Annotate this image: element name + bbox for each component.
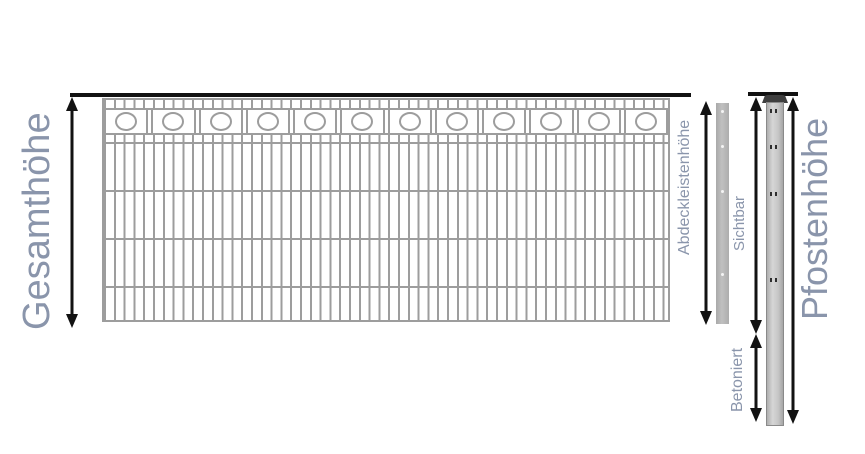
- fence-panel: [102, 98, 670, 322]
- top-reference-line: [70, 93, 691, 97]
- arrow-shaft: [755, 345, 758, 411]
- fence-top-square-band: [104, 100, 668, 110]
- arrowhead-down-icon: [66, 314, 78, 328]
- ornament-ring-icon: [351, 112, 373, 131]
- ornament-ring-icon: [446, 112, 468, 131]
- ornament-cell: [482, 110, 526, 133]
- ornament-cell: [151, 110, 195, 133]
- ornament-ring-icon: [304, 112, 326, 131]
- fence-mesh-grid: [104, 144, 668, 320]
- ornament-cell: [293, 110, 337, 133]
- arrow-shaft: [755, 108, 758, 323]
- ornament-cell: [624, 110, 668, 133]
- arrowhead-down-icon: [787, 410, 799, 424]
- ornament-cell: [577, 110, 621, 133]
- post-hole-pair-icon: [770, 192, 777, 196]
- strip-hole-icon: [721, 190, 724, 193]
- ornament-cell: [435, 110, 479, 133]
- strip-hole-icon: [721, 273, 724, 276]
- arrowhead-down-icon: [750, 320, 762, 334]
- arrowhead-down-icon: [700, 311, 712, 325]
- ornament-ring-icon: [635, 112, 657, 131]
- post-hole-pair-icon: [770, 109, 777, 113]
- label-gesamthoehe: Gesamthöhe: [16, 120, 62, 330]
- ornament-ring-icon: [493, 112, 515, 131]
- ornament-ring-icon: [257, 112, 279, 131]
- ornament-cell: [199, 110, 243, 133]
- arrow-shaft: [71, 108, 74, 317]
- ornament-cell: [246, 110, 290, 133]
- arrowhead-down-icon: [750, 408, 762, 422]
- strip-hole-icon: [721, 145, 724, 148]
- post-hole-pair-icon: [770, 145, 777, 149]
- post-hole-pair-icon: [770, 278, 777, 282]
- ornament-cell: [104, 110, 148, 133]
- arrow-gesamthoehe: [66, 97, 78, 328]
- ornament-ring-icon: [399, 112, 421, 131]
- arrow-sichtbar: [750, 97, 762, 334]
- ornament-ring-icon: [588, 112, 610, 131]
- ornament-ring-icon: [210, 112, 232, 131]
- fence-post: [766, 102, 784, 426]
- label-abdeckleistenhoehe: Abdeckleistenhöhe: [676, 120, 698, 255]
- label-betoniert: Betoniert: [729, 341, 749, 418]
- fence-lower-square-band: [104, 135, 668, 144]
- ornament-cell: [340, 110, 384, 133]
- label-sichtbar: Sichtbar: [731, 191, 751, 255]
- diagram-canvas: Gesamthöhe Abdeckleistenhöhe Sichtbar Be…: [0, 0, 865, 454]
- arrow-abdeckleistenhoehe: [700, 101, 712, 325]
- cover-strip: [716, 103, 729, 324]
- arrow-betoniert: [750, 334, 762, 422]
- fence-ornament-row: [104, 110, 668, 135]
- label-pfostenhoehe: Pfostenhöhe: [794, 116, 840, 322]
- strip-hole-icon: [721, 110, 724, 113]
- ornament-ring-icon: [115, 112, 137, 131]
- ornament-cell: [388, 110, 432, 133]
- ornament-ring-icon: [540, 112, 562, 131]
- ornament-cell: [529, 110, 573, 133]
- ornament-ring-icon: [162, 112, 184, 131]
- arrow-shaft: [705, 112, 708, 314]
